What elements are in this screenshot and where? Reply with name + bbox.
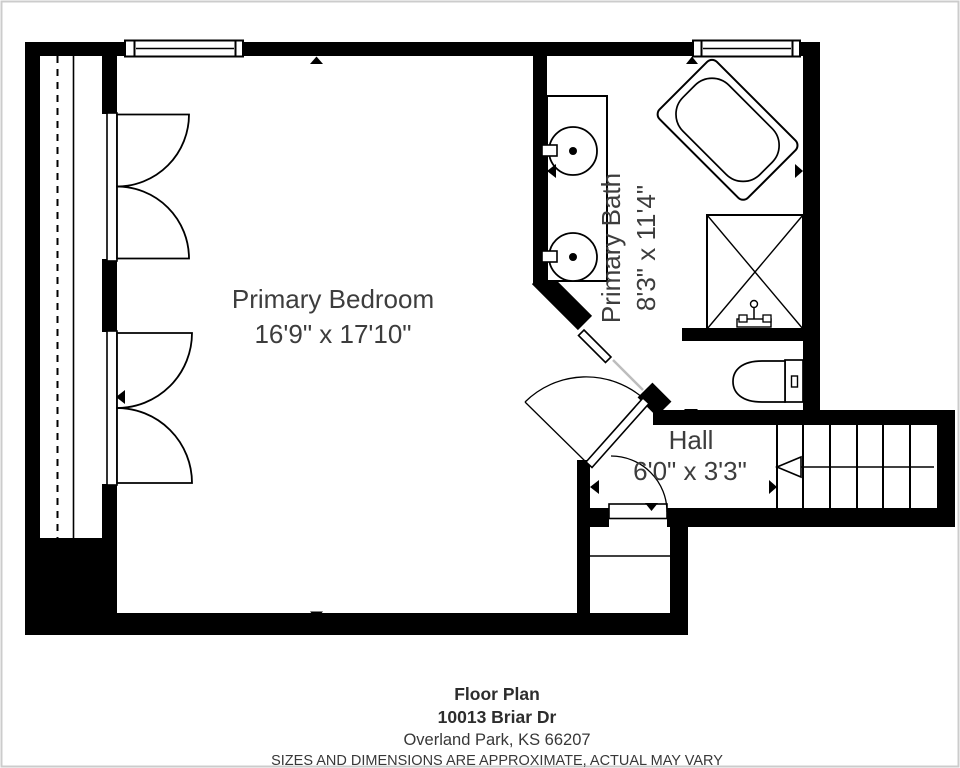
toilet-bowl — [733, 361, 785, 402]
floor-plan-page: Primary Bedroom 16'9" x 17'10" Primary B… — [0, 0, 960, 768]
door-leaf — [609, 504, 667, 519]
footer-address-line1: 10013 Briar Dr — [438, 707, 557, 727]
hall-label: Hall — [669, 425, 714, 455]
bedroom-closet — [58, 56, 193, 538]
footer-disclaimer: SIZES AND DIMENSIONS ARE APPROXIMATE, AC… — [271, 753, 723, 768]
footer-text-block: Floor Plan 10013 Briar Dr Overland Park,… — [271, 684, 723, 768]
diagonal-wall-lower — [645, 390, 664, 409]
door-swing-arc — [525, 377, 643, 402]
sink-drain-icon — [569, 147, 577, 155]
staircase — [777, 425, 934, 508]
bath-window — [693, 41, 800, 57]
bifold-door-lower — [107, 331, 192, 485]
marker-triangle-right — [769, 480, 777, 494]
marker-triangle-right — [795, 164, 803, 178]
marker-triangle-up — [310, 57, 323, 65]
footer-title: Floor Plan — [454, 684, 540, 704]
bifold-door-upper — [107, 113, 189, 261]
bathtub-icon — [655, 57, 801, 203]
shower-icon — [707, 215, 803, 329]
faucet-icon — [542, 251, 557, 262]
marker-triangle-left — [590, 480, 599, 494]
bedroom-window — [125, 41, 243, 57]
primary-bedroom-label: Primary Bedroom — [232, 284, 434, 314]
footer-address-line2: Overland Park, KS 66207 — [403, 731, 590, 749]
door-leaf — [579, 330, 612, 363]
pocket-door-track — [613, 360, 643, 390]
primary-bath-dimensions: 8'3" x 11'4" — [631, 185, 661, 311]
hall-dimensions: 6'0" x 3'3" — [633, 456, 747, 486]
diagonal-wall-upper — [539, 277, 585, 323]
bath-pocket-door — [579, 330, 644, 390]
toilet-icon — [733, 360, 803, 402]
sink-drain-icon — [569, 253, 577, 261]
marker-triangle-up — [686, 57, 698, 65]
stair-direction-arrow — [777, 457, 801, 477]
faucet-icon — [542, 145, 557, 156]
bedroom-door — [525, 377, 649, 468]
primary-bath-label: Primary Bath — [596, 173, 626, 323]
floor-plan-canvas: Primary Bedroom 16'9" x 17'10" Primary B… — [0, 0, 960, 768]
primary-bedroom-dimensions: 16'9" x 17'10" — [254, 319, 411, 349]
toilet-flush-button — [792, 376, 798, 387]
